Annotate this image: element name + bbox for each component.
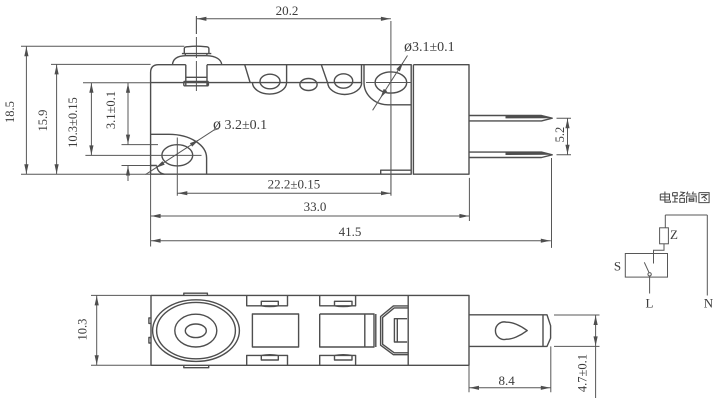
svg-text:3.1±0.1: 3.1±0.1 [104,91,118,129]
svg-text:18.5: 18.5 [3,101,17,123]
svg-text:33.0: 33.0 [304,199,327,214]
svg-text:N: N [704,296,714,311]
svg-text:10.3±0.15: 10.3±0.15 [66,97,80,148]
svg-text:20.2: 20.2 [276,3,299,18]
svg-text:ø3.1±0.1: ø3.1±0.1 [404,38,455,55]
svg-text:8.4: 8.4 [498,373,515,388]
svg-text:S: S [614,259,621,274]
svg-text:10.3: 10.3 [76,319,90,341]
svg-text:4.7±0.1: 4.7±0.1 [576,354,590,392]
svg-text:ø 3.2±0.1: ø 3.2±0.1 [213,116,267,133]
svg-text:L: L [646,296,654,311]
svg-text:41.5: 41.5 [339,224,362,239]
svg-text:22.2±0.15: 22.2±0.15 [268,176,321,191]
svg-text:5.2: 5.2 [553,127,567,143]
svg-text:15.9: 15.9 [36,110,50,132]
svg-text:Z: Z [670,227,678,242]
